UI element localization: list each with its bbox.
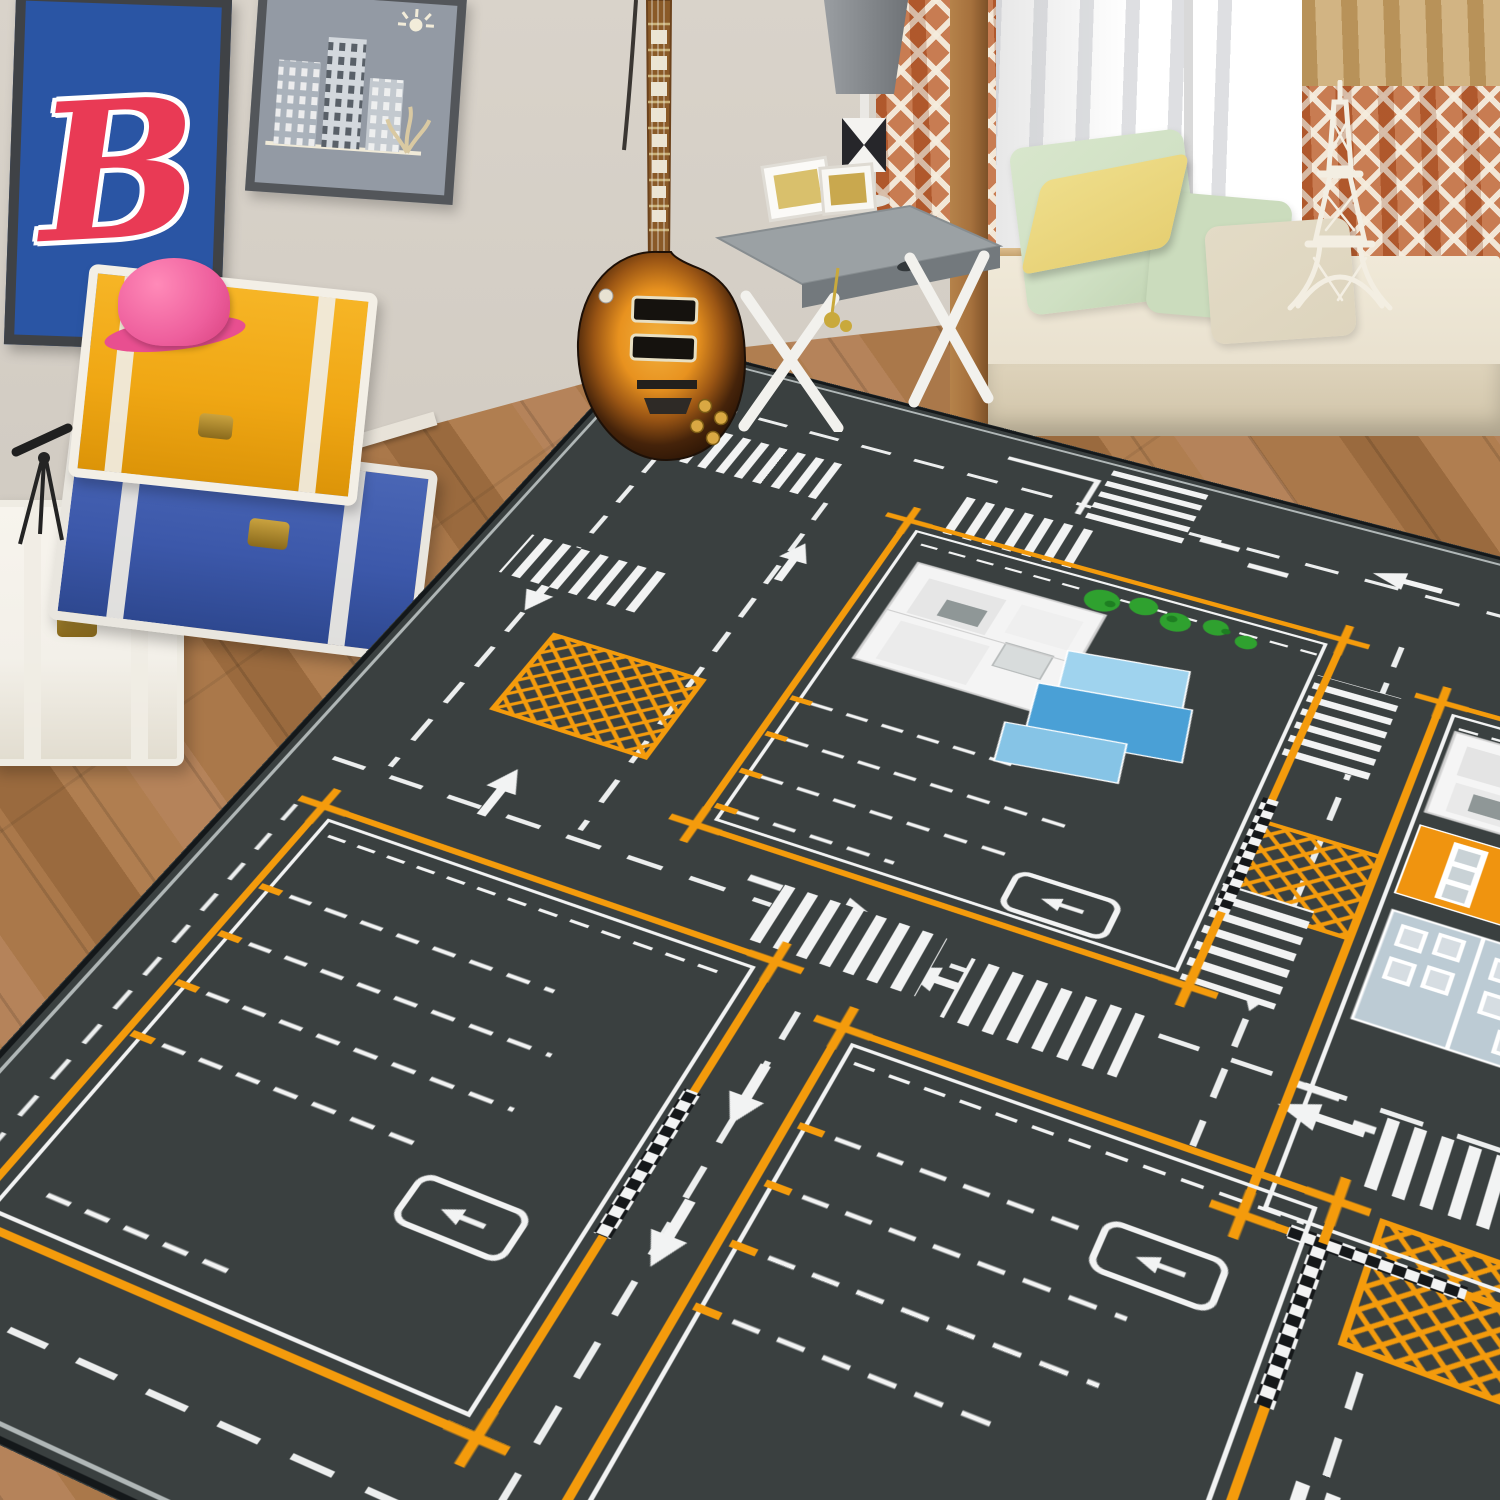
trunk-latch (247, 518, 290, 551)
pink-helmet (118, 258, 230, 346)
guitar-strap (624, 0, 636, 150)
skyline-graphic (256, 0, 440, 176)
pickup-switch (599, 289, 613, 303)
side-table (718, 206, 1000, 428)
trunk-strap (299, 297, 336, 494)
window-seat-front (986, 364, 1500, 436)
kids-room-photo: B (0, 0, 1500, 1500)
poster-letter: B (33, 72, 203, 270)
side-table-with-lamp (712, 0, 1012, 432)
eiffel-tower-figurine (1284, 80, 1396, 312)
trunk-latch (197, 413, 233, 440)
city-skyline-poster (245, 0, 467, 205)
picture-frames (762, 157, 876, 220)
toy-telescope (4, 416, 108, 562)
